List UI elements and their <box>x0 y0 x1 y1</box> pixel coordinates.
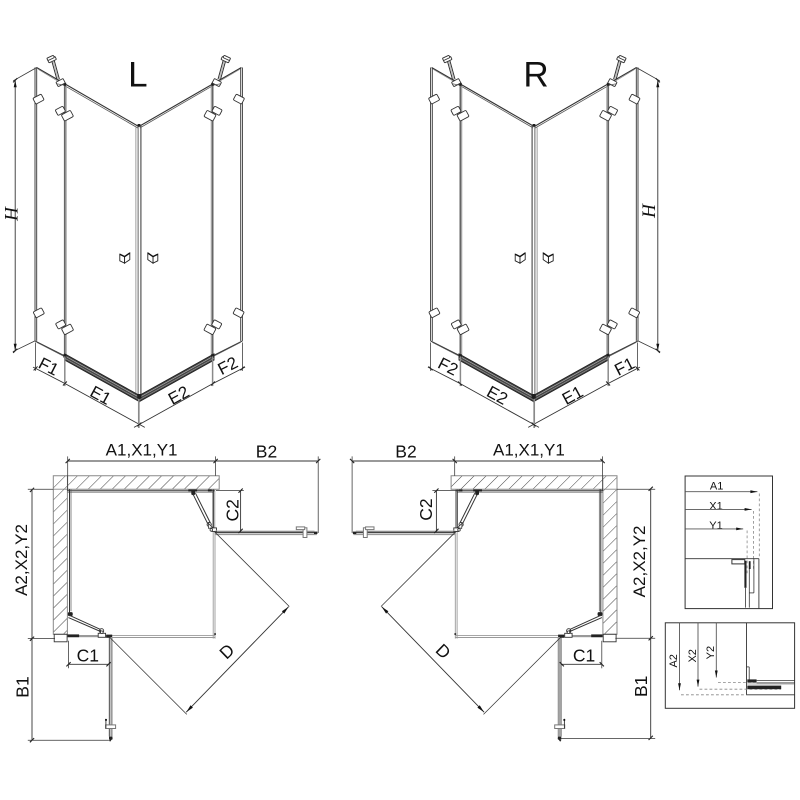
svg-text:R: R <box>523 56 548 95</box>
svg-text:C1: C1 <box>573 645 595 665</box>
svg-text:E2: E2 <box>165 382 192 409</box>
svg-text:B1: B1 <box>631 676 651 697</box>
svg-text:A1: A1 <box>710 481 723 493</box>
svg-text:F1: F1 <box>35 354 61 380</box>
svg-text:Y2: Y2 <box>705 646 717 659</box>
svg-text:D: D <box>215 640 238 663</box>
svg-text:E1: E1 <box>559 382 586 409</box>
svg-text:A2: A2 <box>668 654 680 667</box>
svg-text:X1: X1 <box>709 501 722 513</box>
svg-text:L: L <box>128 56 147 95</box>
svg-text:A1,X1,Y1: A1,X1,Y1 <box>106 441 178 460</box>
svg-text:F2: F2 <box>215 353 241 379</box>
svg-text:E1: E1 <box>87 382 114 409</box>
svg-text:F2: F2 <box>435 354 461 380</box>
svg-text:X2: X2 <box>687 649 699 662</box>
svg-text:H: H <box>2 206 23 222</box>
svg-text:H: H <box>639 203 660 219</box>
svg-text:C2: C2 <box>222 499 242 521</box>
svg-text:C2: C2 <box>416 498 436 520</box>
svg-text:B2: B2 <box>256 442 277 462</box>
svg-text:C1: C1 <box>77 645 99 665</box>
svg-text:D: D <box>432 640 455 663</box>
svg-text:A2,X2,Y2: A2,X2,Y2 <box>630 525 649 597</box>
svg-text:A1,X1,Y1: A1,X1,Y1 <box>493 441 565 460</box>
svg-text:B1: B1 <box>13 676 33 697</box>
svg-text:B2: B2 <box>395 442 416 462</box>
svg-text:F1: F1 <box>611 354 637 380</box>
svg-text:A2,X2,Y2: A2,X2,Y2 <box>12 524 31 596</box>
svg-text:Y1: Y1 <box>709 520 722 532</box>
